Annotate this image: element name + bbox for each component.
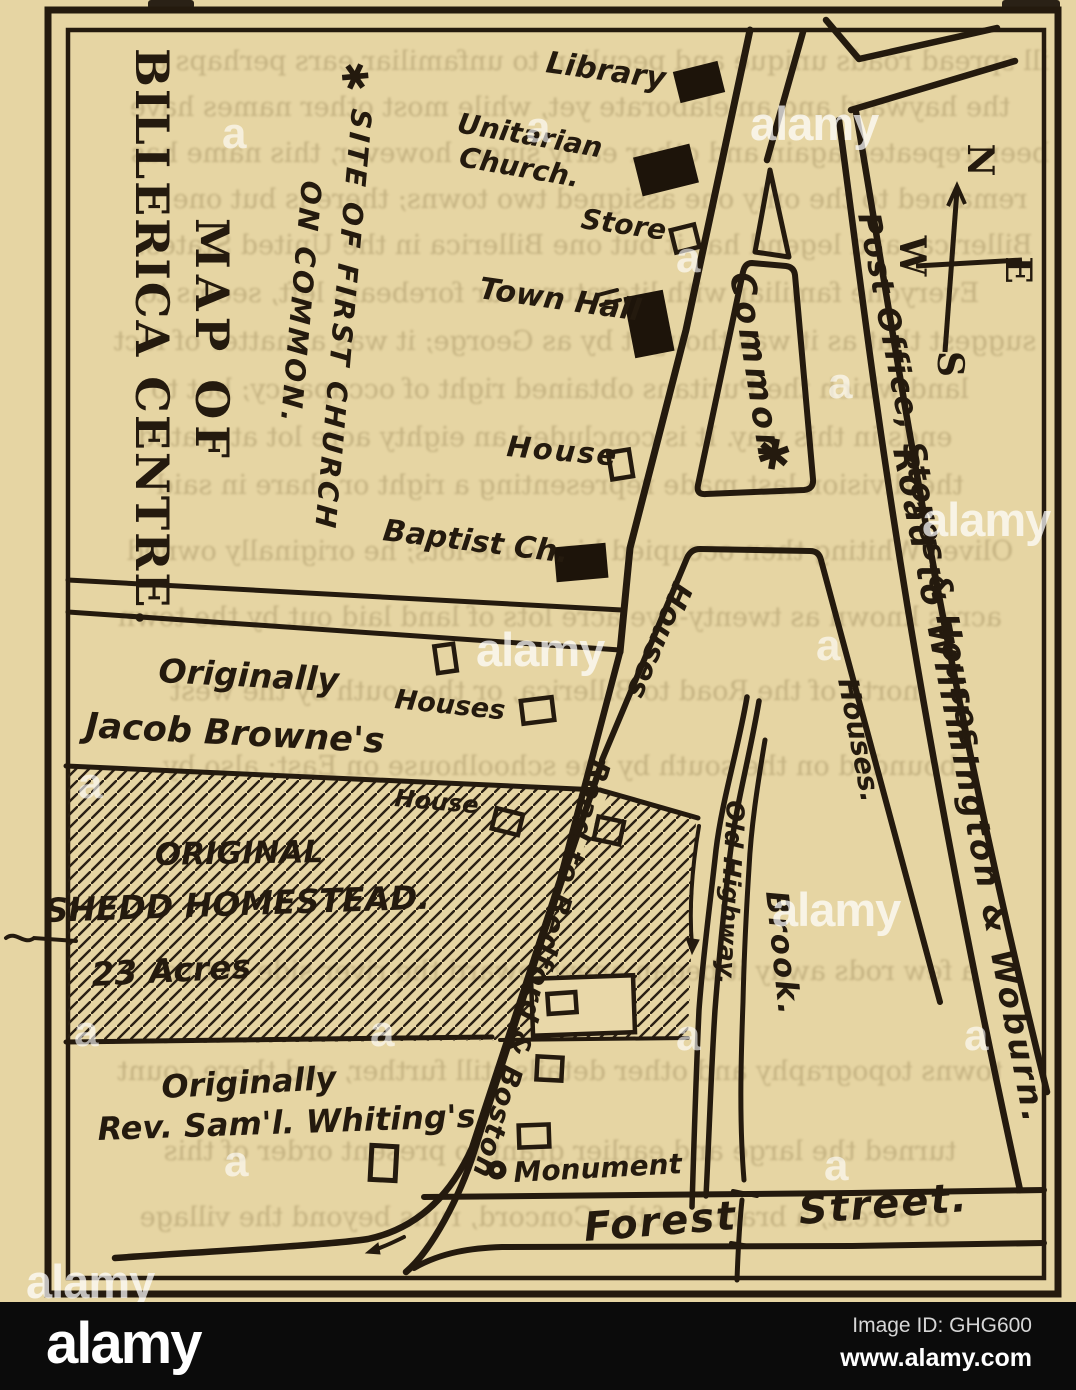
watermark-tile: a [964, 1011, 989, 1060]
alamy-watermark: alamy [750, 97, 879, 150]
alamy-watermark: alamy [922, 493, 1051, 546]
watermark-tile: a [370, 1007, 395, 1056]
watermark-tile: a [824, 1141, 849, 1190]
watermark-tile: a [224, 1137, 249, 1186]
scanned-book-page: ill spread roads unique and peculiar, to… [0, 0, 1076, 1302]
alamy-watermark: alamy [26, 1255, 155, 1302]
watermark-tile: a [676, 233, 701, 282]
watermark-tile: a [78, 759, 103, 808]
alamy-url: www.alamy.com [840, 1344, 1032, 1373]
watermark-tile: a [526, 103, 551, 152]
label-shedd-1: ORIGINAL [155, 834, 324, 873]
image-id: Image ID: GHG600 [840, 1314, 1032, 1338]
alamy-watermark: alamy [772, 883, 901, 936]
map-title-line2: BILLERICA CENTRE. [125, 48, 179, 627]
watermark-tile: a [74, 1007, 99, 1056]
ghost-line: the division last made representing a ri… [156, 470, 963, 501]
watermark-tile: a [816, 621, 841, 670]
map-title-line1: MAP OF [185, 218, 239, 464]
alamy-footer-bar: alamy Image ID: GHG600 www.alamy.com [0, 1302, 1076, 1390]
compass-n: N [959, 144, 1001, 177]
watermark-tile: a [222, 109, 247, 158]
label-shedd-3: 23 Acres [90, 947, 252, 994]
alamy-logo: alamy [46, 1310, 200, 1377]
compass-s: S [929, 351, 971, 377]
alamy-watermark: alamy [476, 623, 605, 676]
billerica-centre-map: ill spread roads unique and peculiar, to… [0, 0, 1076, 1302]
image-meta: Image ID: GHG600 www.alamy.com [840, 1314, 1032, 1373]
watermark-tile: a [676, 1011, 701, 1060]
compass-e: E [997, 256, 1039, 283]
watermark-tile: a [828, 359, 853, 408]
stock-photo-screenshot: ill spread roads unique and peculiar, to… [0, 0, 1076, 1390]
